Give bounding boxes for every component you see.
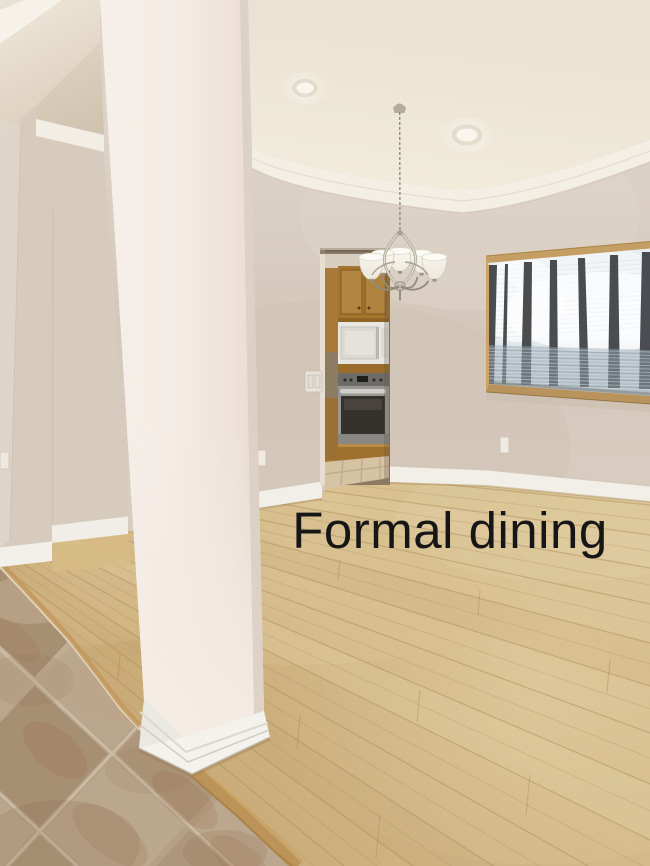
svg-text:Formal dining: Formal dining bbox=[292, 502, 607, 559]
